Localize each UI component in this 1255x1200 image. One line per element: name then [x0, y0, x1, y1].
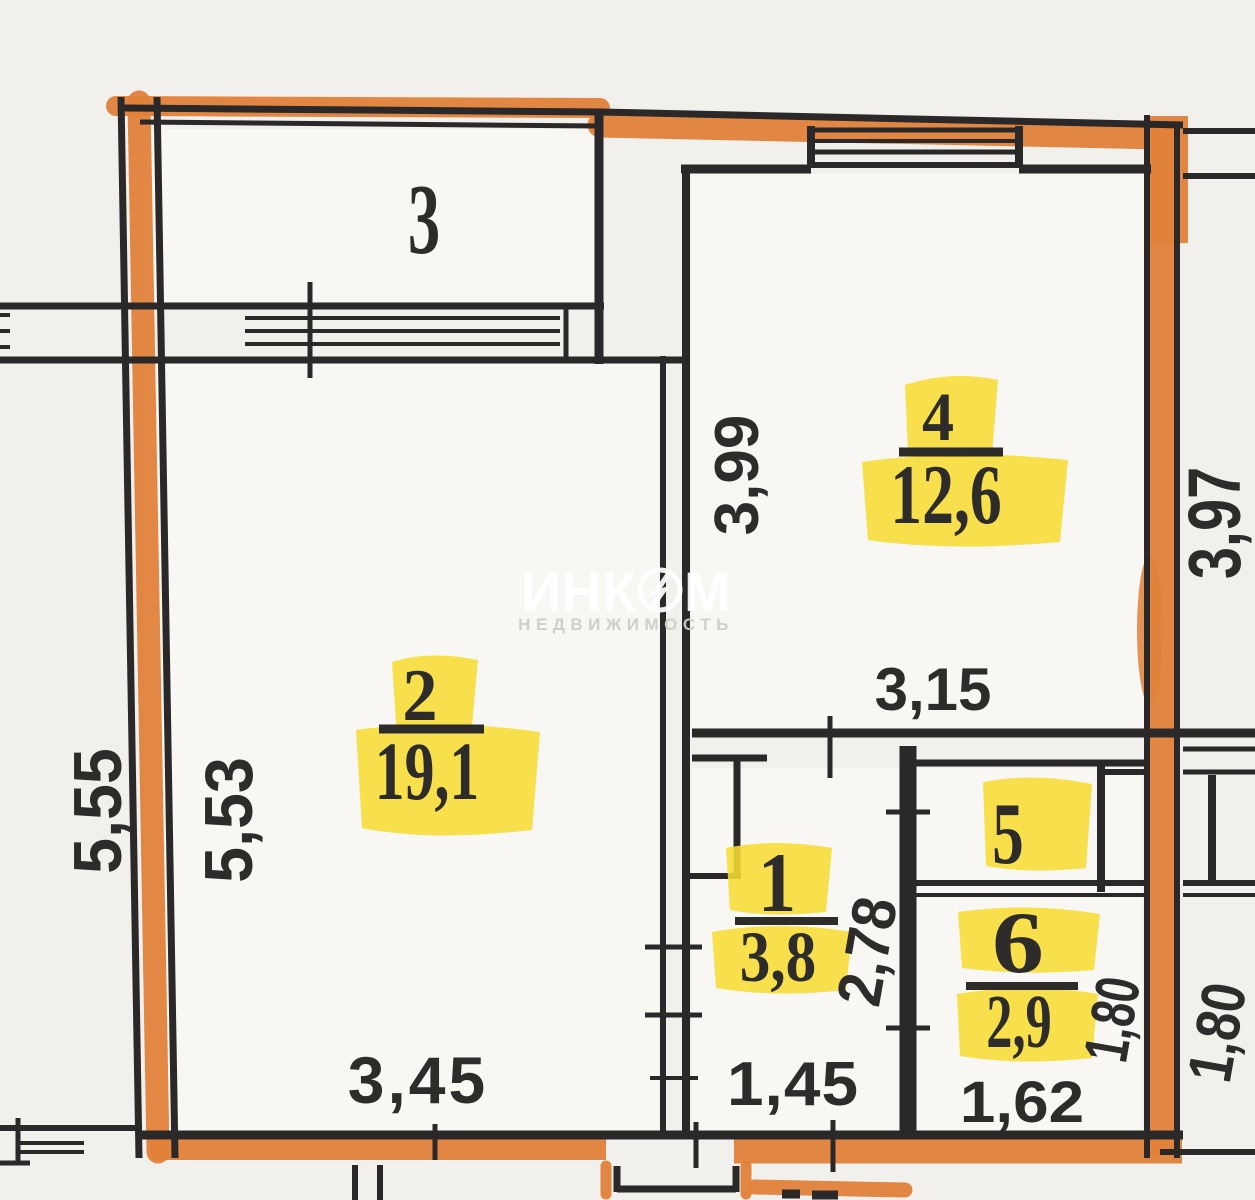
svg-text:3: 3 — [408, 164, 440, 276]
svg-text:3,97: 3,97 — [1174, 467, 1255, 579]
svg-text:3,99: 3,99 — [703, 415, 772, 536]
svg-text:19,1: 19,1 — [375, 726, 480, 818]
svg-text:1: 1 — [758, 836, 796, 930]
svg-text:2,9: 2,9 — [986, 981, 1052, 1065]
svg-text:НЕДВИЖИМОСТЬ: НЕДВИЖИМОСТЬ — [518, 615, 734, 634]
svg-text:4: 4 — [922, 380, 954, 456]
svg-text:3,8: 3,8 — [740, 917, 816, 997]
svg-text:5,55: 5,55 — [61, 748, 137, 874]
svg-text:3,45: 3,45 — [348, 1043, 488, 1117]
svg-text:2: 2 — [402, 654, 437, 736]
svg-text:1,80: 1,80 — [1072, 972, 1154, 1067]
svg-text:1,62: 1,62 — [960, 1070, 1084, 1135]
svg-text:1,45: 1,45 — [727, 1049, 859, 1119]
svg-text:М: М — [684, 560, 731, 623]
svg-text:3,15: 3,15 — [875, 656, 992, 723]
svg-text:5,53: 5,53 — [192, 757, 268, 883]
svg-text:5: 5 — [992, 785, 1024, 883]
svg-text:6: 6 — [992, 893, 1044, 991]
svg-text:12,6: 12,6 — [890, 448, 1002, 542]
svg-text:ИНК: ИНК — [521, 560, 637, 623]
